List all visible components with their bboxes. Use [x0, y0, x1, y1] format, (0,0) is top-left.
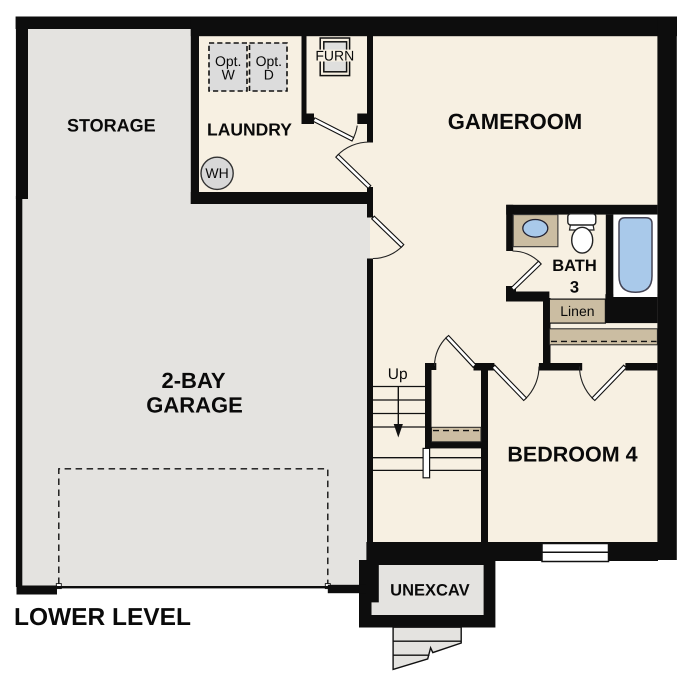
svg-text:BEDROOM 4: BEDROOM 4 — [507, 443, 637, 467]
svg-text:BATH: BATH — [552, 257, 597, 275]
svg-text:GARAGE: GARAGE — [146, 393, 243, 418]
svg-text:D: D — [264, 67, 274, 83]
svg-text:FURN: FURN — [315, 47, 354, 63]
svg-text:UNEXCAV: UNEXCAV — [390, 582, 469, 600]
svg-text:LOWER LEVEL: LOWER LEVEL — [14, 604, 191, 631]
svg-text:3: 3 — [570, 279, 579, 297]
svg-text:Up: Up — [388, 366, 408, 383]
svg-text:W: W — [222, 67, 236, 83]
svg-text:2-BAY: 2-BAY — [162, 368, 226, 393]
svg-text:GAMEROOM: GAMEROOM — [448, 109, 582, 134]
svg-text:LAUNDRY: LAUNDRY — [207, 120, 292, 140]
svg-text:WH: WH — [205, 165, 228, 181]
svg-text:STORAGE: STORAGE — [67, 116, 156, 136]
svg-text:Linen: Linen — [560, 303, 594, 319]
